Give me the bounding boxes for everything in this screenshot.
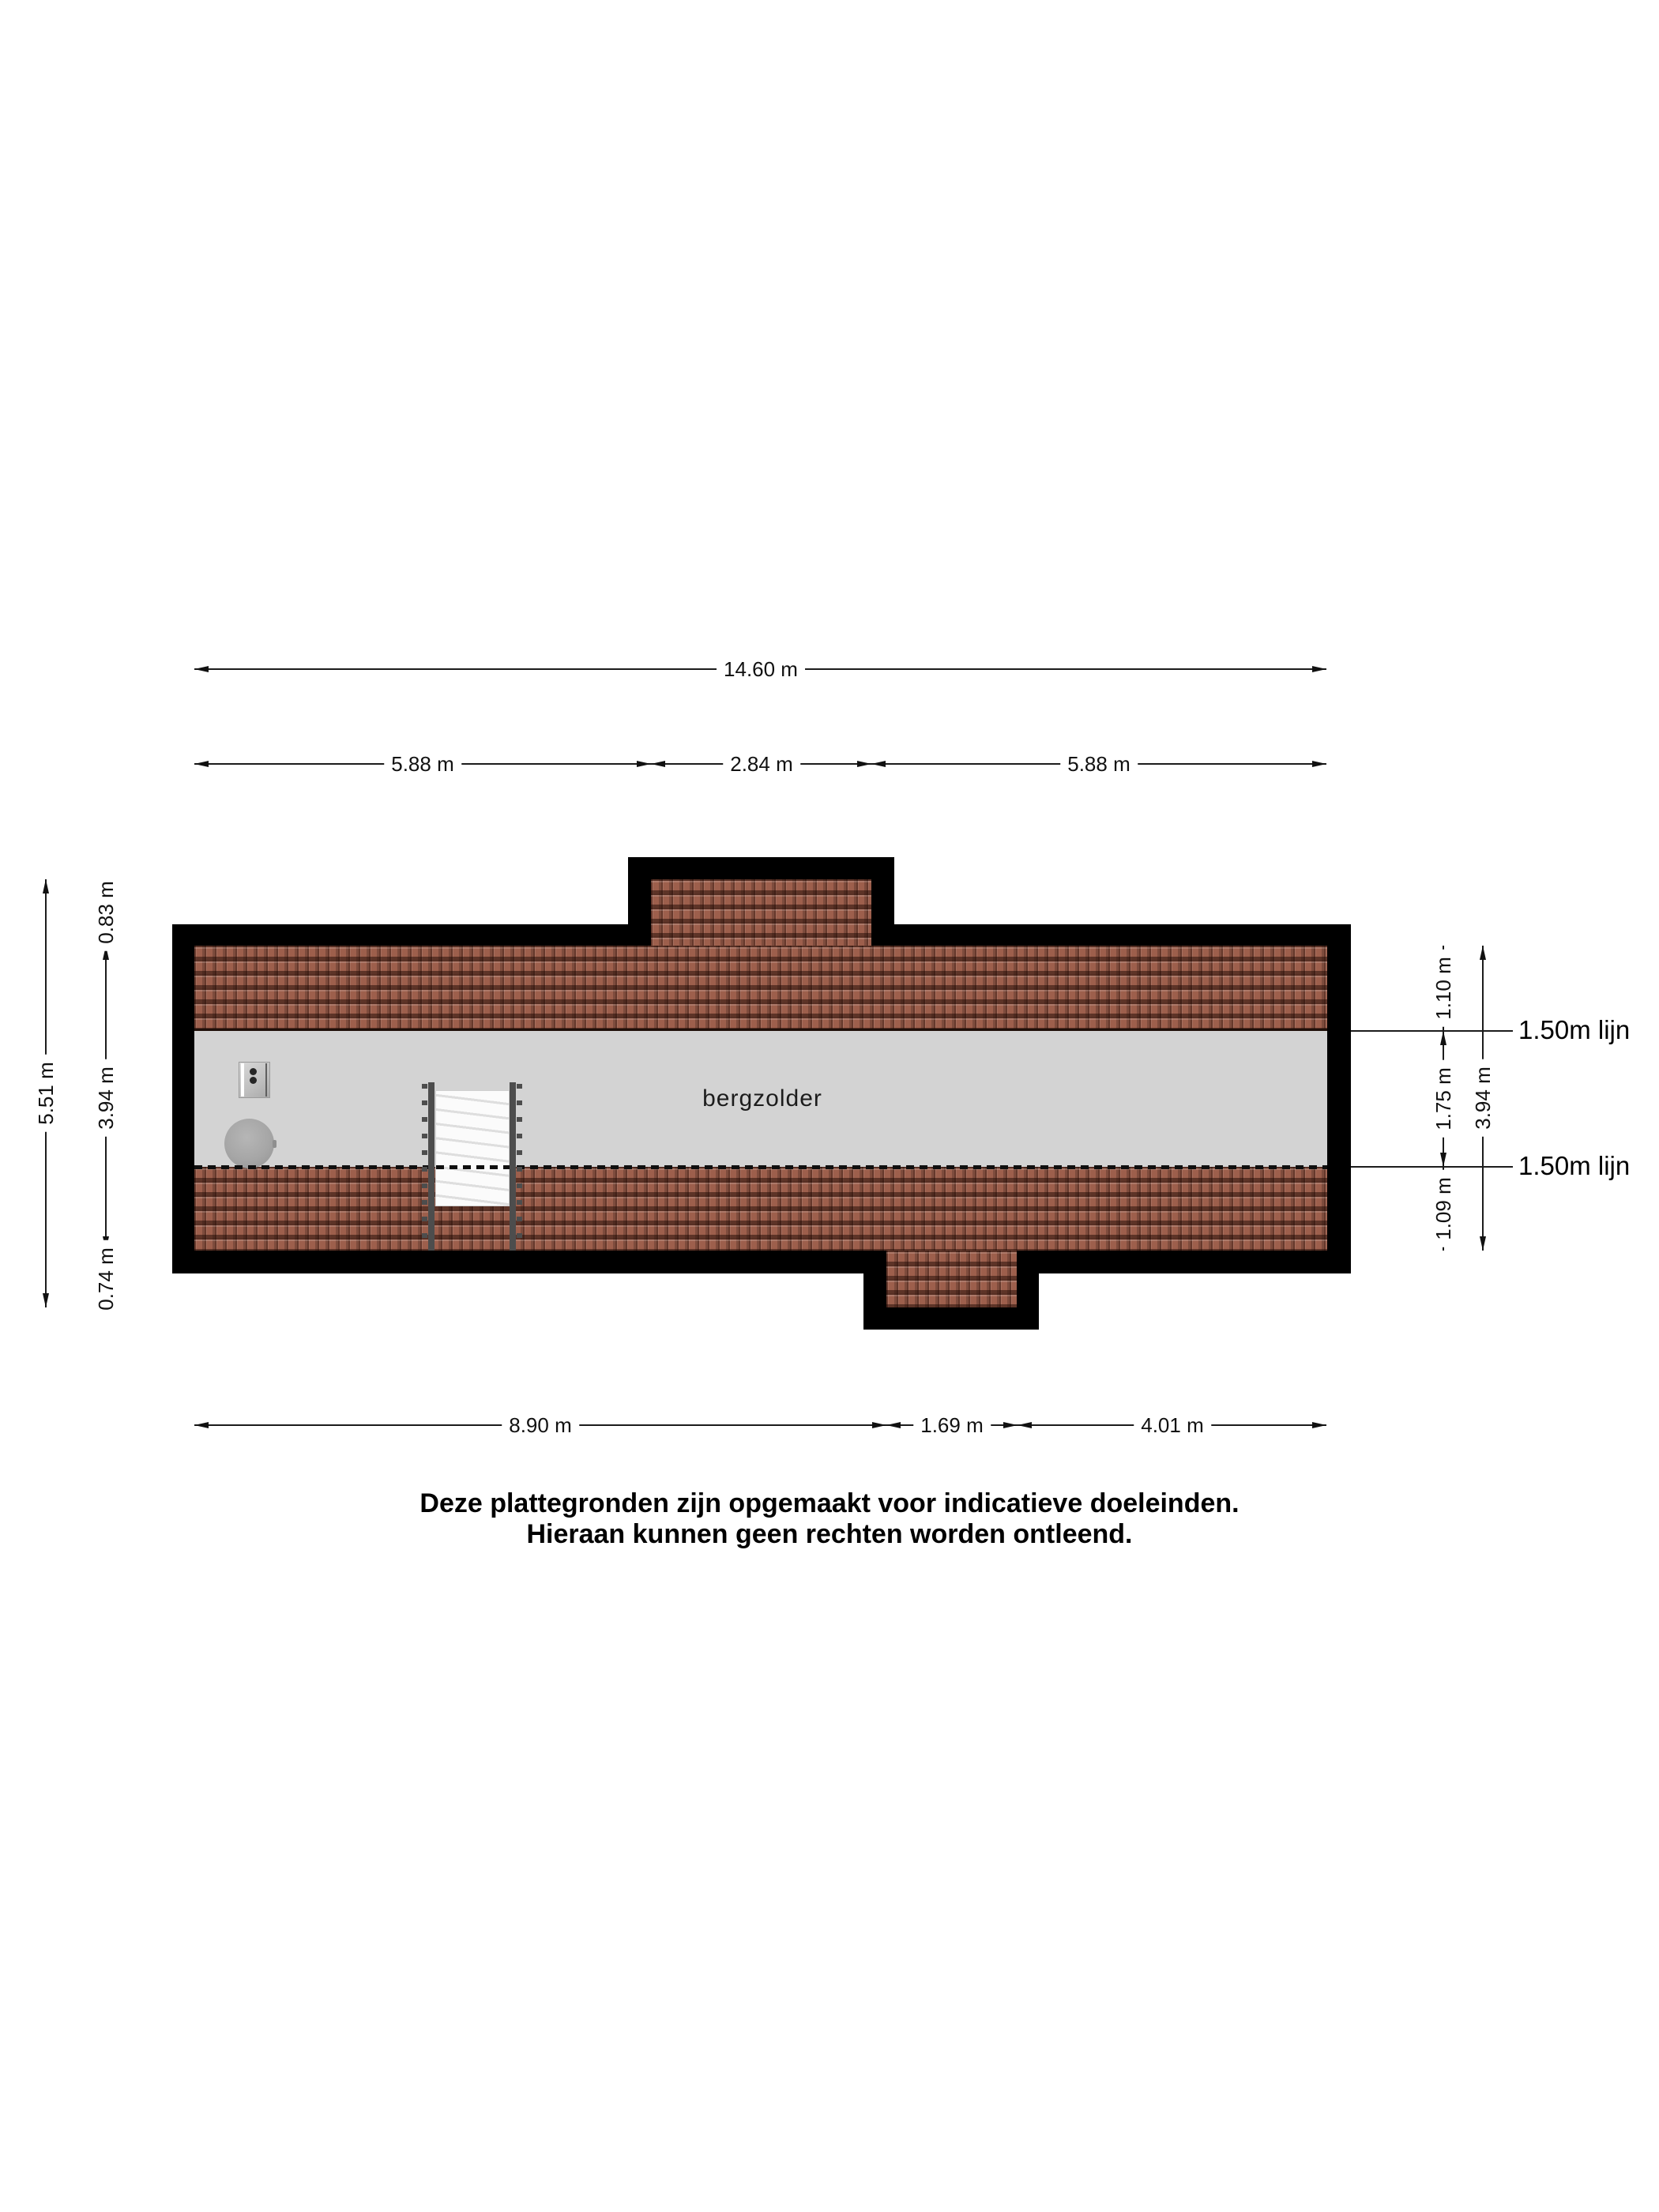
dim-label: 2.84 m	[723, 752, 800, 776]
dim-label: 5.51 m	[34, 1055, 58, 1132]
arrow-down-icon	[1440, 1153, 1446, 1167]
arrow-up-icon	[1440, 1031, 1446, 1045]
dim-label: 1.09 m	[1431, 1170, 1455, 1247]
dim-label: 8.90 m	[502, 1413, 579, 1437]
boiler-valve-icon	[273, 1140, 276, 1148]
arrow-left-icon	[886, 1422, 901, 1428]
ventilation-unit-stripe	[241, 1063, 244, 1097]
leader-line-150-bottom	[1351, 1166, 1513, 1168]
dim-label: 1.69 m	[913, 1413, 991, 1437]
leader-line-150-top	[1351, 1030, 1513, 1032]
stair-balusters-left	[422, 1084, 427, 1249]
arrow-left-icon	[1018, 1422, 1032, 1428]
arrow-right-icon	[1312, 666, 1326, 672]
dim-right-total: 3.94 m	[1482, 946, 1484, 1251]
arrow-right-icon	[872, 1422, 886, 1428]
arrow-left-icon	[194, 1422, 209, 1428]
stair-rail-right	[510, 1082, 516, 1251]
dim-label: 3.94 m	[1471, 1059, 1495, 1137]
roof-tiles-top-band	[194, 946, 1327, 1031]
disclaimer-line-2: Hieraan kunnen geen rechten worden ontle…	[419, 1519, 1239, 1550]
dim-label: 0.74 m	[94, 1240, 118, 1318]
arrow-left-icon	[194, 666, 209, 672]
arrow-right-icon	[1312, 761, 1326, 767]
arrow-left-icon	[651, 761, 665, 767]
roof-tiles-bottom-dormer	[886, 1251, 1017, 1307]
stair-rail-left	[428, 1082, 434, 1251]
dim-bottom-segments: 8.90 m 1.69 m 4.01 m	[194, 1424, 1326, 1426]
dim-label: 14.60 m	[717, 657, 805, 681]
staircase-treads	[435, 1090, 510, 1206]
dim-label: 3.94 m	[94, 1059, 118, 1137]
arrow-down-icon	[43, 1293, 49, 1307]
dim-left-segments: 0.83 m 3.94 m 0.74 m	[105, 879, 107, 1307]
dim-top-total: 14.60 m	[194, 668, 1326, 670]
stair-balusters-right	[517, 1084, 522, 1249]
roof-tiles-bottom-band	[194, 1167, 1327, 1251]
dim-label: 0.83 m	[94, 874, 118, 951]
arrow-right-icon	[1312, 1422, 1326, 1428]
ventilation-unit-knob-top	[250, 1068, 257, 1075]
arrow-up-icon	[43, 879, 49, 893]
arrow-right-icon	[1003, 1422, 1018, 1428]
arrow-up-icon	[1480, 946, 1486, 960]
dim-label: 4.01 m	[1134, 1413, 1211, 1437]
arrow-right-icon	[857, 761, 871, 767]
disclaimer-line-1: Deze plattegronden zijn opgemaakt voor i…	[419, 1488, 1239, 1519]
arrow-left-icon	[194, 761, 209, 767]
line-150-label-bottom: 1.50m lijn	[1518, 1151, 1630, 1181]
arrow-right-icon	[637, 761, 651, 767]
arrow-down-icon	[1480, 1236, 1486, 1251]
dim-label: 1.10 m	[1431, 950, 1455, 1027]
ventilation-unit-icon	[239, 1062, 270, 1098]
line-150-label-top: 1.50m lijn	[1518, 1015, 1630, 1045]
dim-label: 5.88 m	[1060, 752, 1138, 776]
floorplan-canvas: bergzolder 14.60 m 5.88 m 2.84 m 5.88 m …	[0, 0, 1659, 2212]
roof-tiles-top-dormer	[651, 879, 871, 946]
arrow-left-icon	[871, 761, 886, 767]
dim-label: 5.88 m	[384, 752, 461, 776]
disclaimer-text: Deze plattegronden zijn opgemaakt voor i…	[419, 1488, 1239, 1550]
dim-label: 1.75 m	[1431, 1060, 1455, 1138]
ventilation-unit-edge	[265, 1063, 267, 1097]
boiler-icon	[224, 1119, 274, 1168]
room-label: bergzolder	[702, 1085, 822, 1112]
dim-top-segments: 5.88 m 2.84 m 5.88 m	[194, 763, 1326, 765]
dim-right-segments: 1.10 m 1.75 m 1.09 m	[1443, 946, 1444, 1251]
dashed-height-line	[194, 1165, 1327, 1169]
ventilation-unit-knob-bottom	[250, 1077, 257, 1084]
dim-left-total: 5.51 m	[45, 879, 47, 1307]
